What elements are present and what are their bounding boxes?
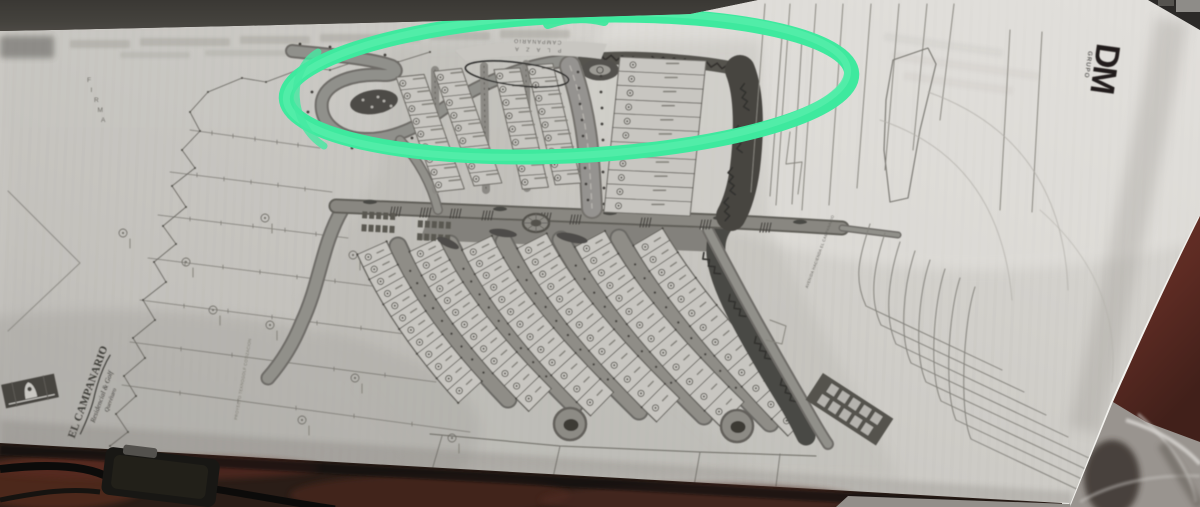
svg-text:F: F	[87, 77, 91, 84]
svg-text:R: R	[94, 97, 99, 104]
svg-text:M: M	[98, 107, 103, 114]
svg-text:I: I	[91, 87, 93, 94]
svg-text:A: A	[101, 117, 106, 124]
